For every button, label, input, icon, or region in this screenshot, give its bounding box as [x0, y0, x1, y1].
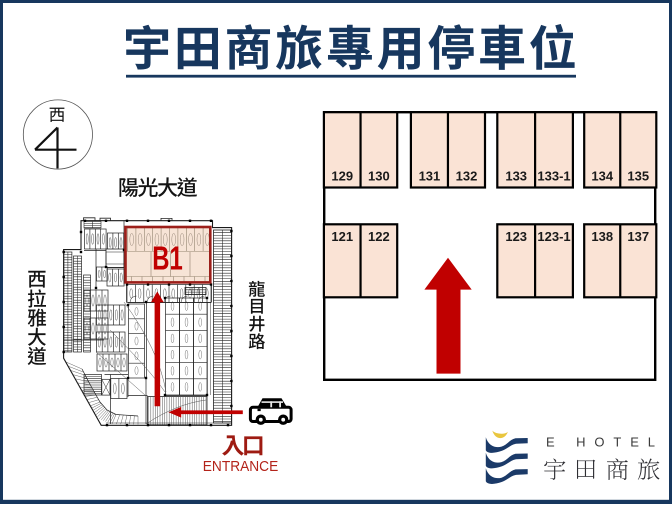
svg-text:129: 129: [331, 169, 353, 184]
svg-text:133-1: 133-1: [537, 169, 570, 184]
svg-text:134: 134: [591, 169, 613, 184]
svg-text:131: 131: [419, 169, 441, 184]
svg-text:123-1: 123-1: [537, 229, 570, 244]
svg-text:137: 137: [627, 229, 649, 244]
svg-text:135: 135: [627, 169, 649, 184]
svg-text:138: 138: [591, 229, 613, 244]
svg-text:121: 121: [331, 229, 353, 244]
svg-text:123: 123: [505, 229, 527, 244]
svg-text:E HOTEL: E HOTEL: [546, 434, 664, 449]
svg-text:ENTRANCE: ENTRANCE: [203, 459, 279, 475]
svg-text:132: 132: [456, 169, 478, 184]
svg-text:B1: B1: [152, 240, 183, 277]
svg-text:133: 133: [505, 169, 527, 184]
svg-text:130: 130: [368, 169, 390, 184]
svg-text:122: 122: [368, 229, 390, 244]
